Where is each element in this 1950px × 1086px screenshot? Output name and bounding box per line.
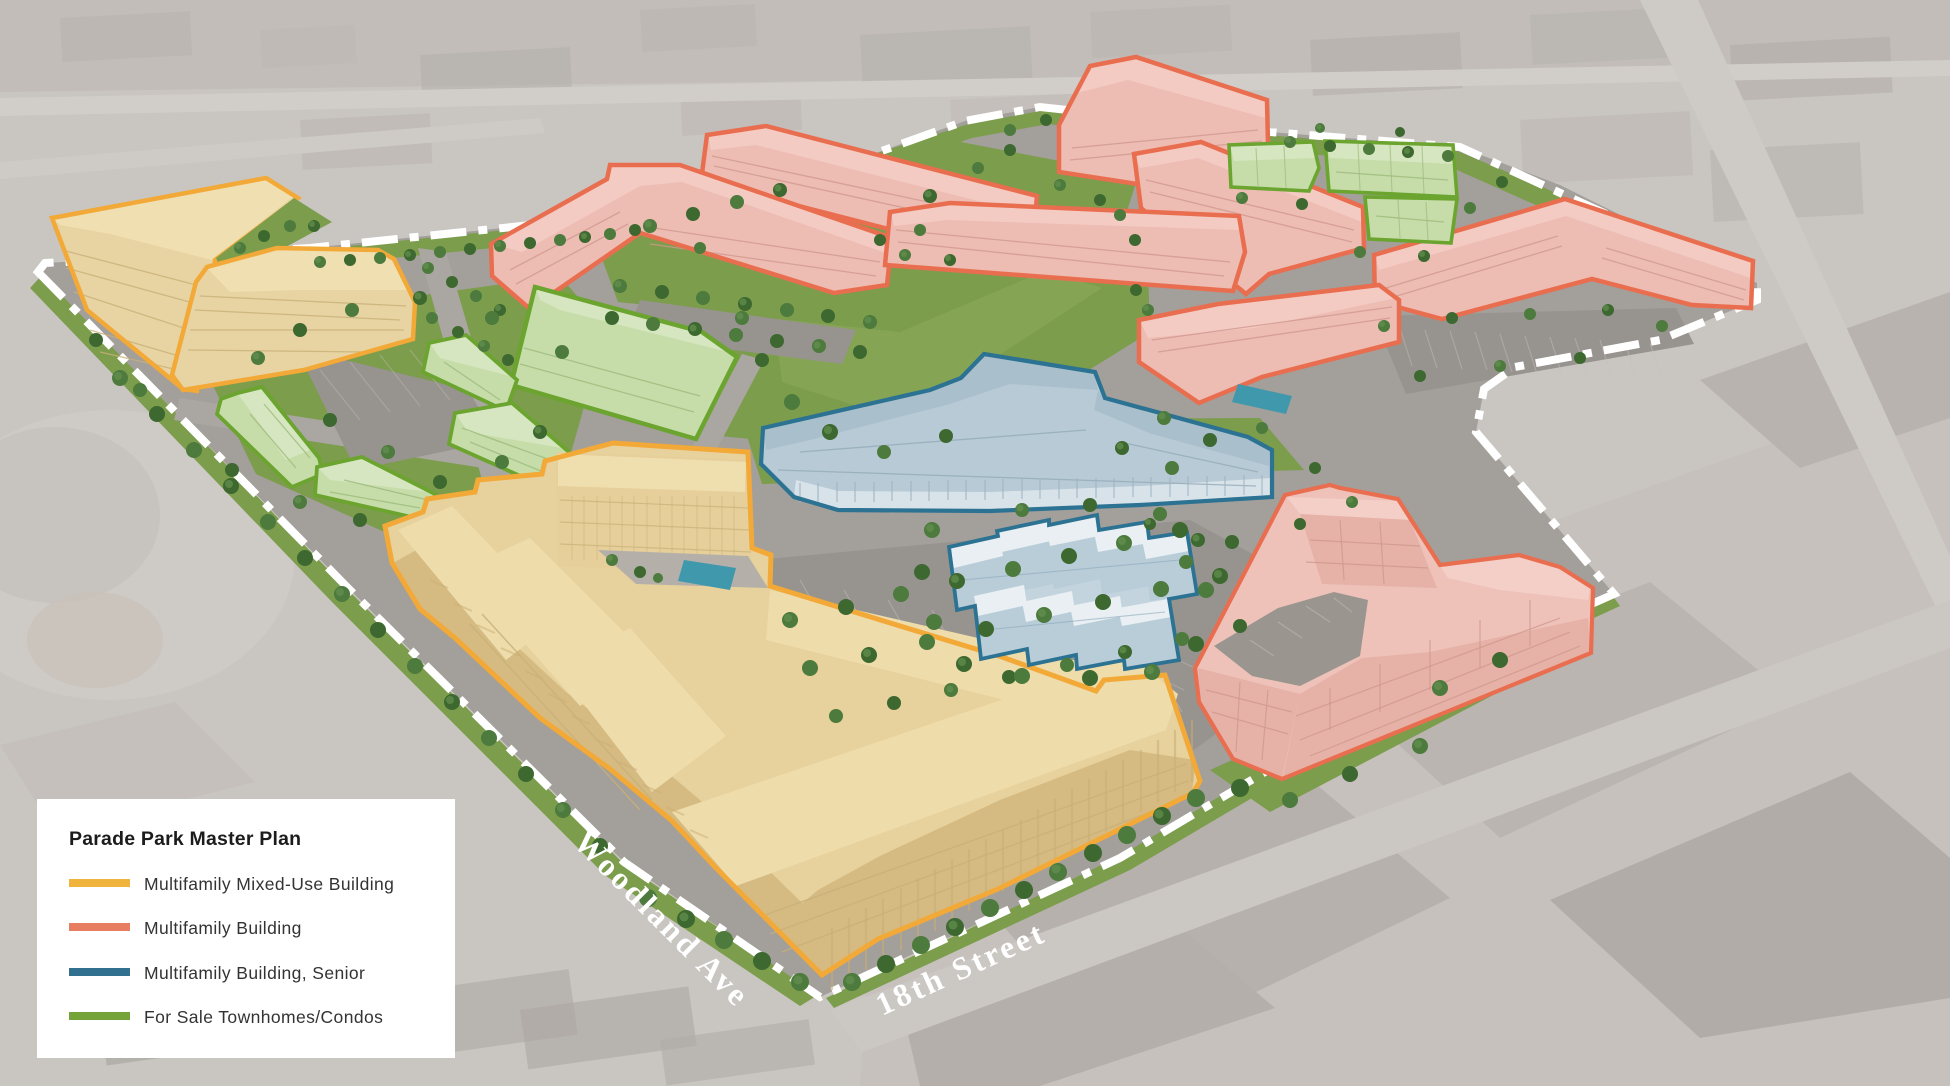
svg-text:For Sale Townhomes/Condos: For Sale Townhomes/Condos bbox=[144, 1007, 383, 1027]
svg-text:Multifamily Mixed-Use Building: Multifamily Mixed-Use Building bbox=[144, 874, 394, 894]
svg-text:Multifamily Building, Senior: Multifamily Building, Senior bbox=[144, 963, 365, 983]
svg-text:Parade Park Master Plan: Parade Park Master Plan bbox=[69, 828, 301, 850]
svg-text:Multifamily Building: Multifamily Building bbox=[144, 918, 302, 938]
